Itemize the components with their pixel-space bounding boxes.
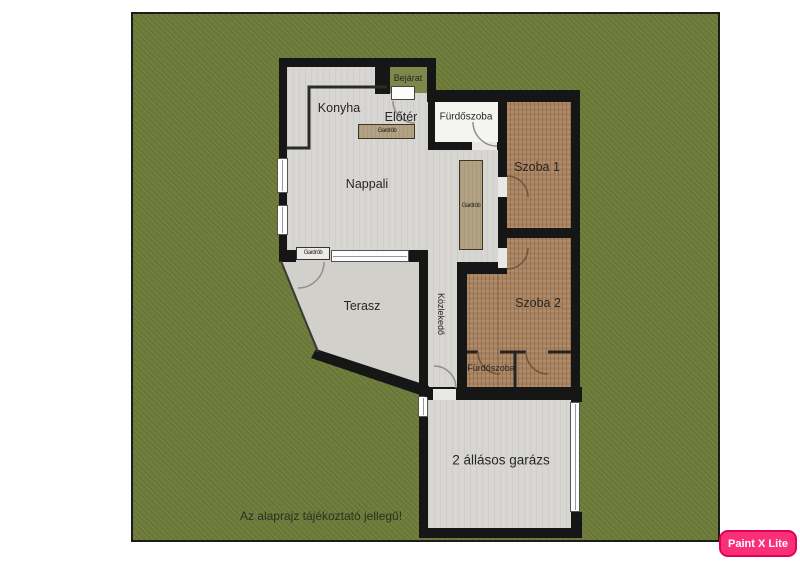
watermark-label: Paint X Lite — [728, 538, 788, 550]
disclaimer-text: Az alaprajz tájékoztató jellegű! — [240, 509, 402, 523]
room-label-furdoszoba-top: Fürdőszoba — [440, 112, 493, 123]
wall-segment — [571, 90, 580, 395]
door-gap-garage — [433, 389, 456, 400]
door-gap-room1 — [498, 177, 507, 197]
label-gardrob-hall: Gardrób — [462, 203, 481, 209]
wall-segment — [419, 528, 582, 538]
floor-plan-page: Bejárat Konyha Előtér Fürdőszoba Szoba 1… — [0, 0, 800, 562]
sliding-door-terrace — [331, 250, 409, 262]
window-left-2 — [277, 205, 288, 235]
wall-segment — [428, 102, 435, 146]
wall-segment — [498, 228, 580, 238]
room-label-furdoszoba-bottom: Fürdőszoba — [467, 363, 515, 373]
room-label-szoba1: Szoba 1 — [514, 160, 560, 174]
wall-segment — [279, 250, 296, 262]
wall-segment — [279, 58, 436, 67]
wall-segment — [571, 512, 582, 538]
floor-bathroom-top — [435, 102, 498, 144]
room-label-eloter: Előtér — [385, 110, 418, 124]
wall-segment — [279, 58, 287, 158]
room-label-bejarat: Bejárat — [394, 73, 423, 83]
window-garage-left — [418, 396, 428, 417]
door-gap-room2 — [498, 248, 507, 268]
entry-door-leaf — [391, 86, 415, 100]
window-left-1 — [277, 158, 288, 193]
room-label-konyha: Konyha — [318, 101, 360, 115]
room-label-nappali: Nappali — [346, 177, 388, 191]
wall-segment — [571, 387, 582, 402]
room-label-kozlekedo: Közlekedő — [436, 293, 446, 335]
wall-segment — [419, 250, 428, 392]
paint-x-lite-watermark: Paint X Lite — [719, 530, 797, 557]
wall-segment — [457, 262, 467, 390]
room-label-garazs: 2 állásos garázs — [452, 453, 550, 468]
door-gap-bathroom-top — [472, 142, 497, 150]
room-label-terasz: Terasz — [344, 299, 381, 313]
wall-segment — [375, 67, 390, 94]
label-gardrob-entry: Gardrób — [378, 128, 397, 134]
wall-segment — [427, 90, 580, 102]
wall-segment — [279, 193, 287, 205]
garage-door — [570, 402, 580, 512]
room-label-szoba2: Szoba 2 — [515, 296, 561, 310]
label-gardrob-living: Gardrób — [304, 250, 323, 256]
